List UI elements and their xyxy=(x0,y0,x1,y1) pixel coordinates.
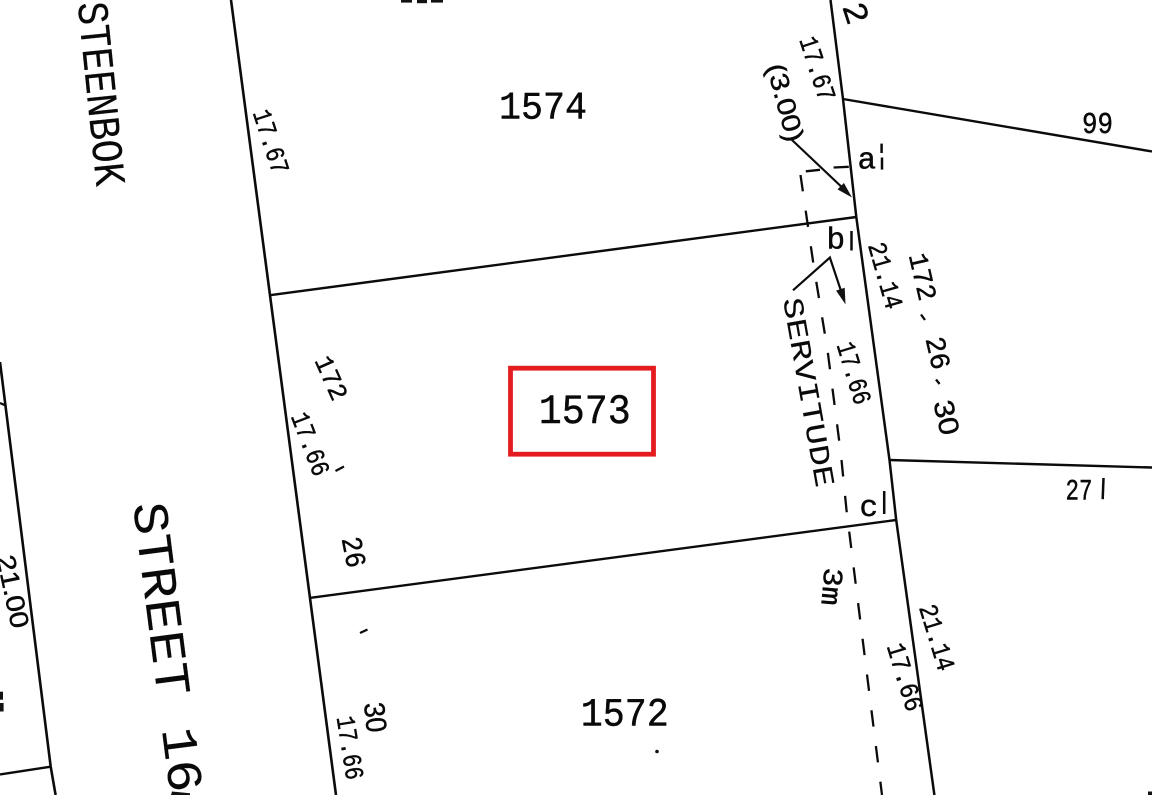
svg-text:99: 99 xyxy=(1082,108,1113,143)
svg-text:26: 26 xyxy=(333,534,371,571)
svg-text:3m: 3m xyxy=(812,566,846,607)
svg-text:b: b xyxy=(827,224,846,259)
svg-text:a: a xyxy=(858,144,877,179)
svg-text:c: c xyxy=(860,491,879,526)
svg-text:1574: 1574 xyxy=(499,87,587,131)
svg-text:27: 27 xyxy=(1066,476,1093,510)
svg-text:1572: 1572 xyxy=(581,694,669,739)
svg-text:1573: 1573 xyxy=(539,388,631,436)
svg-text:30: 30 xyxy=(357,701,392,734)
